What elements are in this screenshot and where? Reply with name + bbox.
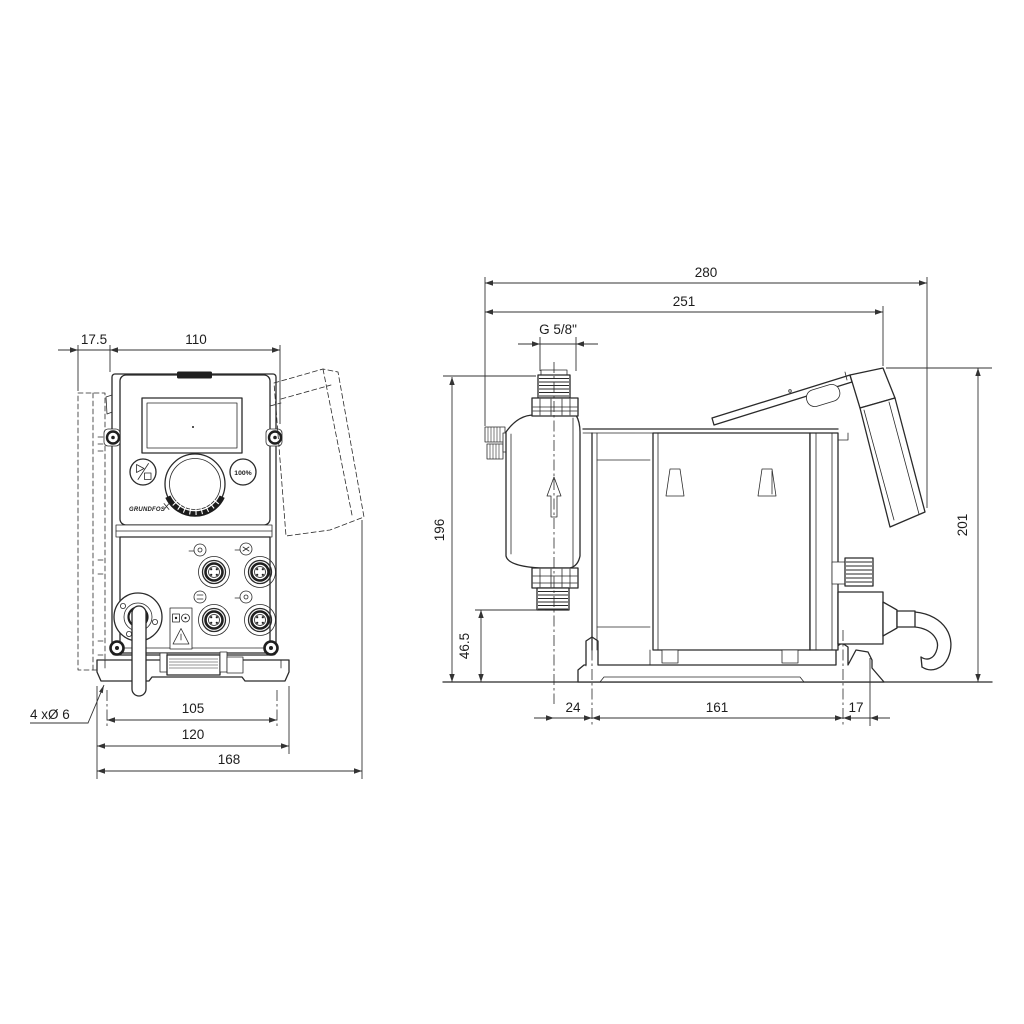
dim-label-wall-offset: 17.5 <box>81 332 107 347</box>
logo-text: GRUNDFOS <box>129 507 165 513</box>
dim-label-overall-width: 168 <box>218 752 241 767</box>
connector-icon <box>194 591 206 603</box>
panel-screw-left <box>104 429 120 446</box>
front-view: 100% GRUNDFOS <box>30 332 364 779</box>
dim-outlet-height: 46.5 <box>457 610 545 682</box>
dim-hole-spacing-front: 105 <box>107 690 277 728</box>
dial-knob <box>165 454 225 515</box>
pump-housing <box>583 429 848 663</box>
capacity-button-label: 100% <box>234 470 251 477</box>
bottom-screw-left <box>111 642 124 655</box>
display <box>142 398 242 453</box>
cover-handle <box>804 382 841 408</box>
panel-screw-right <box>266 429 282 446</box>
warning-label <box>170 608 192 649</box>
dim-label-rear-overhang: 17 <box>848 700 863 715</box>
start-stop-button <box>130 459 156 485</box>
dim-label-bracket-width: 120 <box>182 727 205 742</box>
dim-label-overall-height: 201 <box>955 514 970 537</box>
dim-label-front-offset: 24 <box>565 700 581 715</box>
head-flange <box>586 433 650 666</box>
mounting-holes-callout: 4 xØ 6 <box>30 685 104 723</box>
capacity-100-button: 100% <box>230 459 256 485</box>
discharge-valve <box>532 370 578 416</box>
dimensional-drawing: 100% GRUNDFOS <box>0 0 1024 1024</box>
dim-bracket-width: 120 <box>97 686 289 779</box>
power-cable-side <box>915 612 951 670</box>
panel-top-tab <box>177 372 212 379</box>
dim-label-overall-depth: 280 <box>695 265 718 280</box>
rear-plug <box>832 558 873 586</box>
power-cable <box>132 606 146 696</box>
mounting-holes-label: 4 xØ 6 <box>30 707 70 722</box>
dim-label-thread: G 5/8" <box>539 322 577 337</box>
dim-label-outlet-height: 46.5 <box>457 633 472 659</box>
cover-phantom-outline <box>270 369 364 536</box>
dim-label-hole-spacing-side: 161 <box>706 700 729 715</box>
dim-label-connection-height: 196 <box>432 519 447 542</box>
suction-valve <box>532 568 578 610</box>
dim-overall-height: 201 <box>886 368 992 682</box>
bottom-screw-right <box>265 642 278 655</box>
control-panel: 100% GRUNDFOS <box>104 372 282 526</box>
dim-connection-thread: G 5/8" <box>518 322 598 371</box>
dim-label-depth-to-cover: 251 <box>673 294 696 309</box>
side-view: 280 251 G 5/8" 196 <box>432 265 992 726</box>
dim-label-body-width: 110 <box>185 332 207 347</box>
dosing-head <box>485 370 580 610</box>
dim-label-hole-spacing-front: 105 <box>182 701 205 716</box>
